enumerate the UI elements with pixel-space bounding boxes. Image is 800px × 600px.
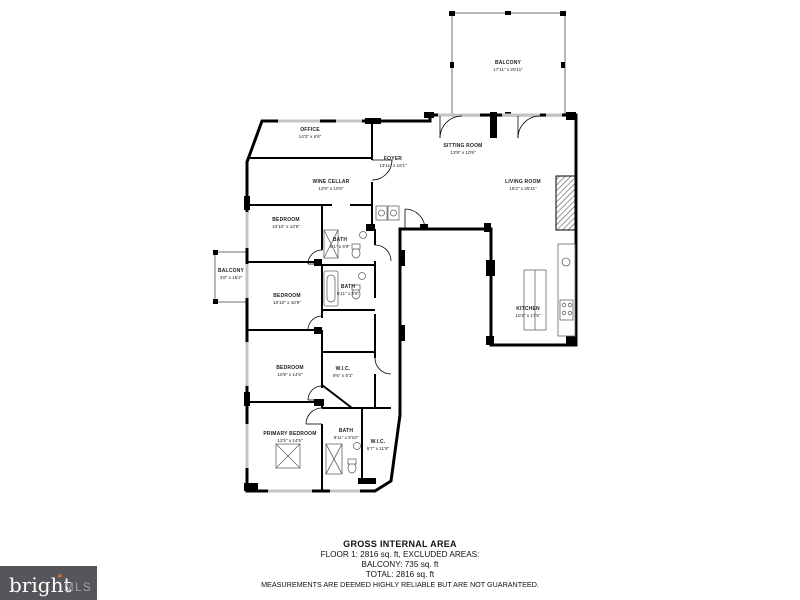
sink — [359, 273, 366, 280]
area-summary-total: TOTAL: 2816 sq. ft — [366, 570, 435, 579]
area-summary-balcony: BALCONY: 735 sq. ft — [362, 560, 440, 569]
logo-star-icon: ✶ — [56, 571, 64, 581]
dims-wic-2: 5'7" x 11'8" — [367, 446, 390, 451]
label-living-room: LIVING ROOM — [505, 179, 541, 185]
dims-foyer: 13'11" x 16'1" — [379, 163, 407, 168]
area-summary-disclaimer: MEASUREMENTS ARE DEEMED HIGHLY RELIABLE … — [261, 580, 539, 589]
dims-bath-lower: 8'11" x 6'10" — [334, 435, 359, 440]
dims-bath-middle: 6'11" x 9'8" — [337, 291, 360, 296]
bright-mls-logo: bright ✶ MLS — [0, 566, 97, 600]
fixtures — [276, 206, 575, 474]
label-balcony-top: BALCONY — [495, 60, 522, 66]
label-sitting-room: SITTING ROOM — [443, 143, 482, 149]
area-summary-title: GROSS INTERNAL AREA — [343, 539, 457, 549]
label-office: OFFICE — [300, 127, 320, 133]
dims-wic-1: 9'6" x 6'1" — [333, 373, 353, 378]
label-wic-1: W.I.C. — [336, 366, 351, 372]
dims-bath-upper: 9'1" x 6'9" — [330, 244, 350, 249]
dims-living-room: 15'2" x 25'11" — [509, 186, 537, 191]
dims-balcony-left: 4'8" x 15'2" — [220, 275, 243, 280]
sink — [354, 443, 361, 450]
label-bedroom-2: BEDROOM — [273, 293, 301, 299]
label-wine-cellar: WINE CELLAR — [313, 179, 350, 185]
dims-kitchen: 10'2" x 17'5" — [515, 313, 541, 318]
dims-primary-bedroom: 12'5" x 14'5" — [277, 438, 303, 443]
area-summary-floor: FLOOR 1: 2816 sq. ft, EXCLUDED AREAS: — [321, 550, 480, 559]
toilet — [352, 248, 360, 258]
dims-bedroom-3: 10'9" x 14'6" — [277, 372, 303, 377]
label-bath-middle: BATH — [341, 284, 356, 290]
kitchen-sink — [562, 258, 570, 266]
stove — [560, 300, 573, 320]
dims-sitting-room: 13'9" x 10'9" — [450, 150, 476, 155]
label-bedroom-3: BEDROOM — [276, 365, 304, 371]
floorplan-svg: BALCONY 17'11" x 20'11" OFFICE 14'3" x 6… — [0, 0, 800, 600]
label-wic-2: W.I.C. — [371, 439, 386, 445]
dims-office: 14'3" x 6'6" — [299, 134, 322, 139]
label-kitchen: KITCHEN — [516, 306, 540, 312]
area-summary: GROSS INTERNAL AREA FLOOR 1: 2816 sq. ft… — [261, 539, 539, 589]
dims-balcony-top: 17'11" x 20'11" — [493, 67, 523, 72]
floorplan-image: BALCONY 17'11" x 20'11" OFFICE 14'3" x 6… — [0, 0, 800, 600]
label-bedroom-1: BEDROOM — [272, 217, 300, 223]
label-foyer: FOYER — [384, 156, 402, 162]
sink — [360, 232, 367, 239]
label-primary-bedroom: PRIMARY BEDROOM — [263, 431, 316, 437]
dims-bedroom-1: 10'10" x 13'5" — [272, 224, 300, 229]
label-bath-upper: BATH — [333, 237, 348, 243]
toilet — [348, 463, 356, 473]
logo-suffix-text: MLS — [64, 582, 92, 594]
label-balcony-left: BALCONY — [218, 268, 245, 274]
dims-bedroom-2: 10'10" x 10'9" — [273, 300, 301, 305]
fireplace-hatch — [556, 176, 575, 230]
dims-wine-cellar: 13'9" x 10'8" — [318, 186, 344, 191]
label-bath-lower: BATH — [339, 428, 354, 434]
